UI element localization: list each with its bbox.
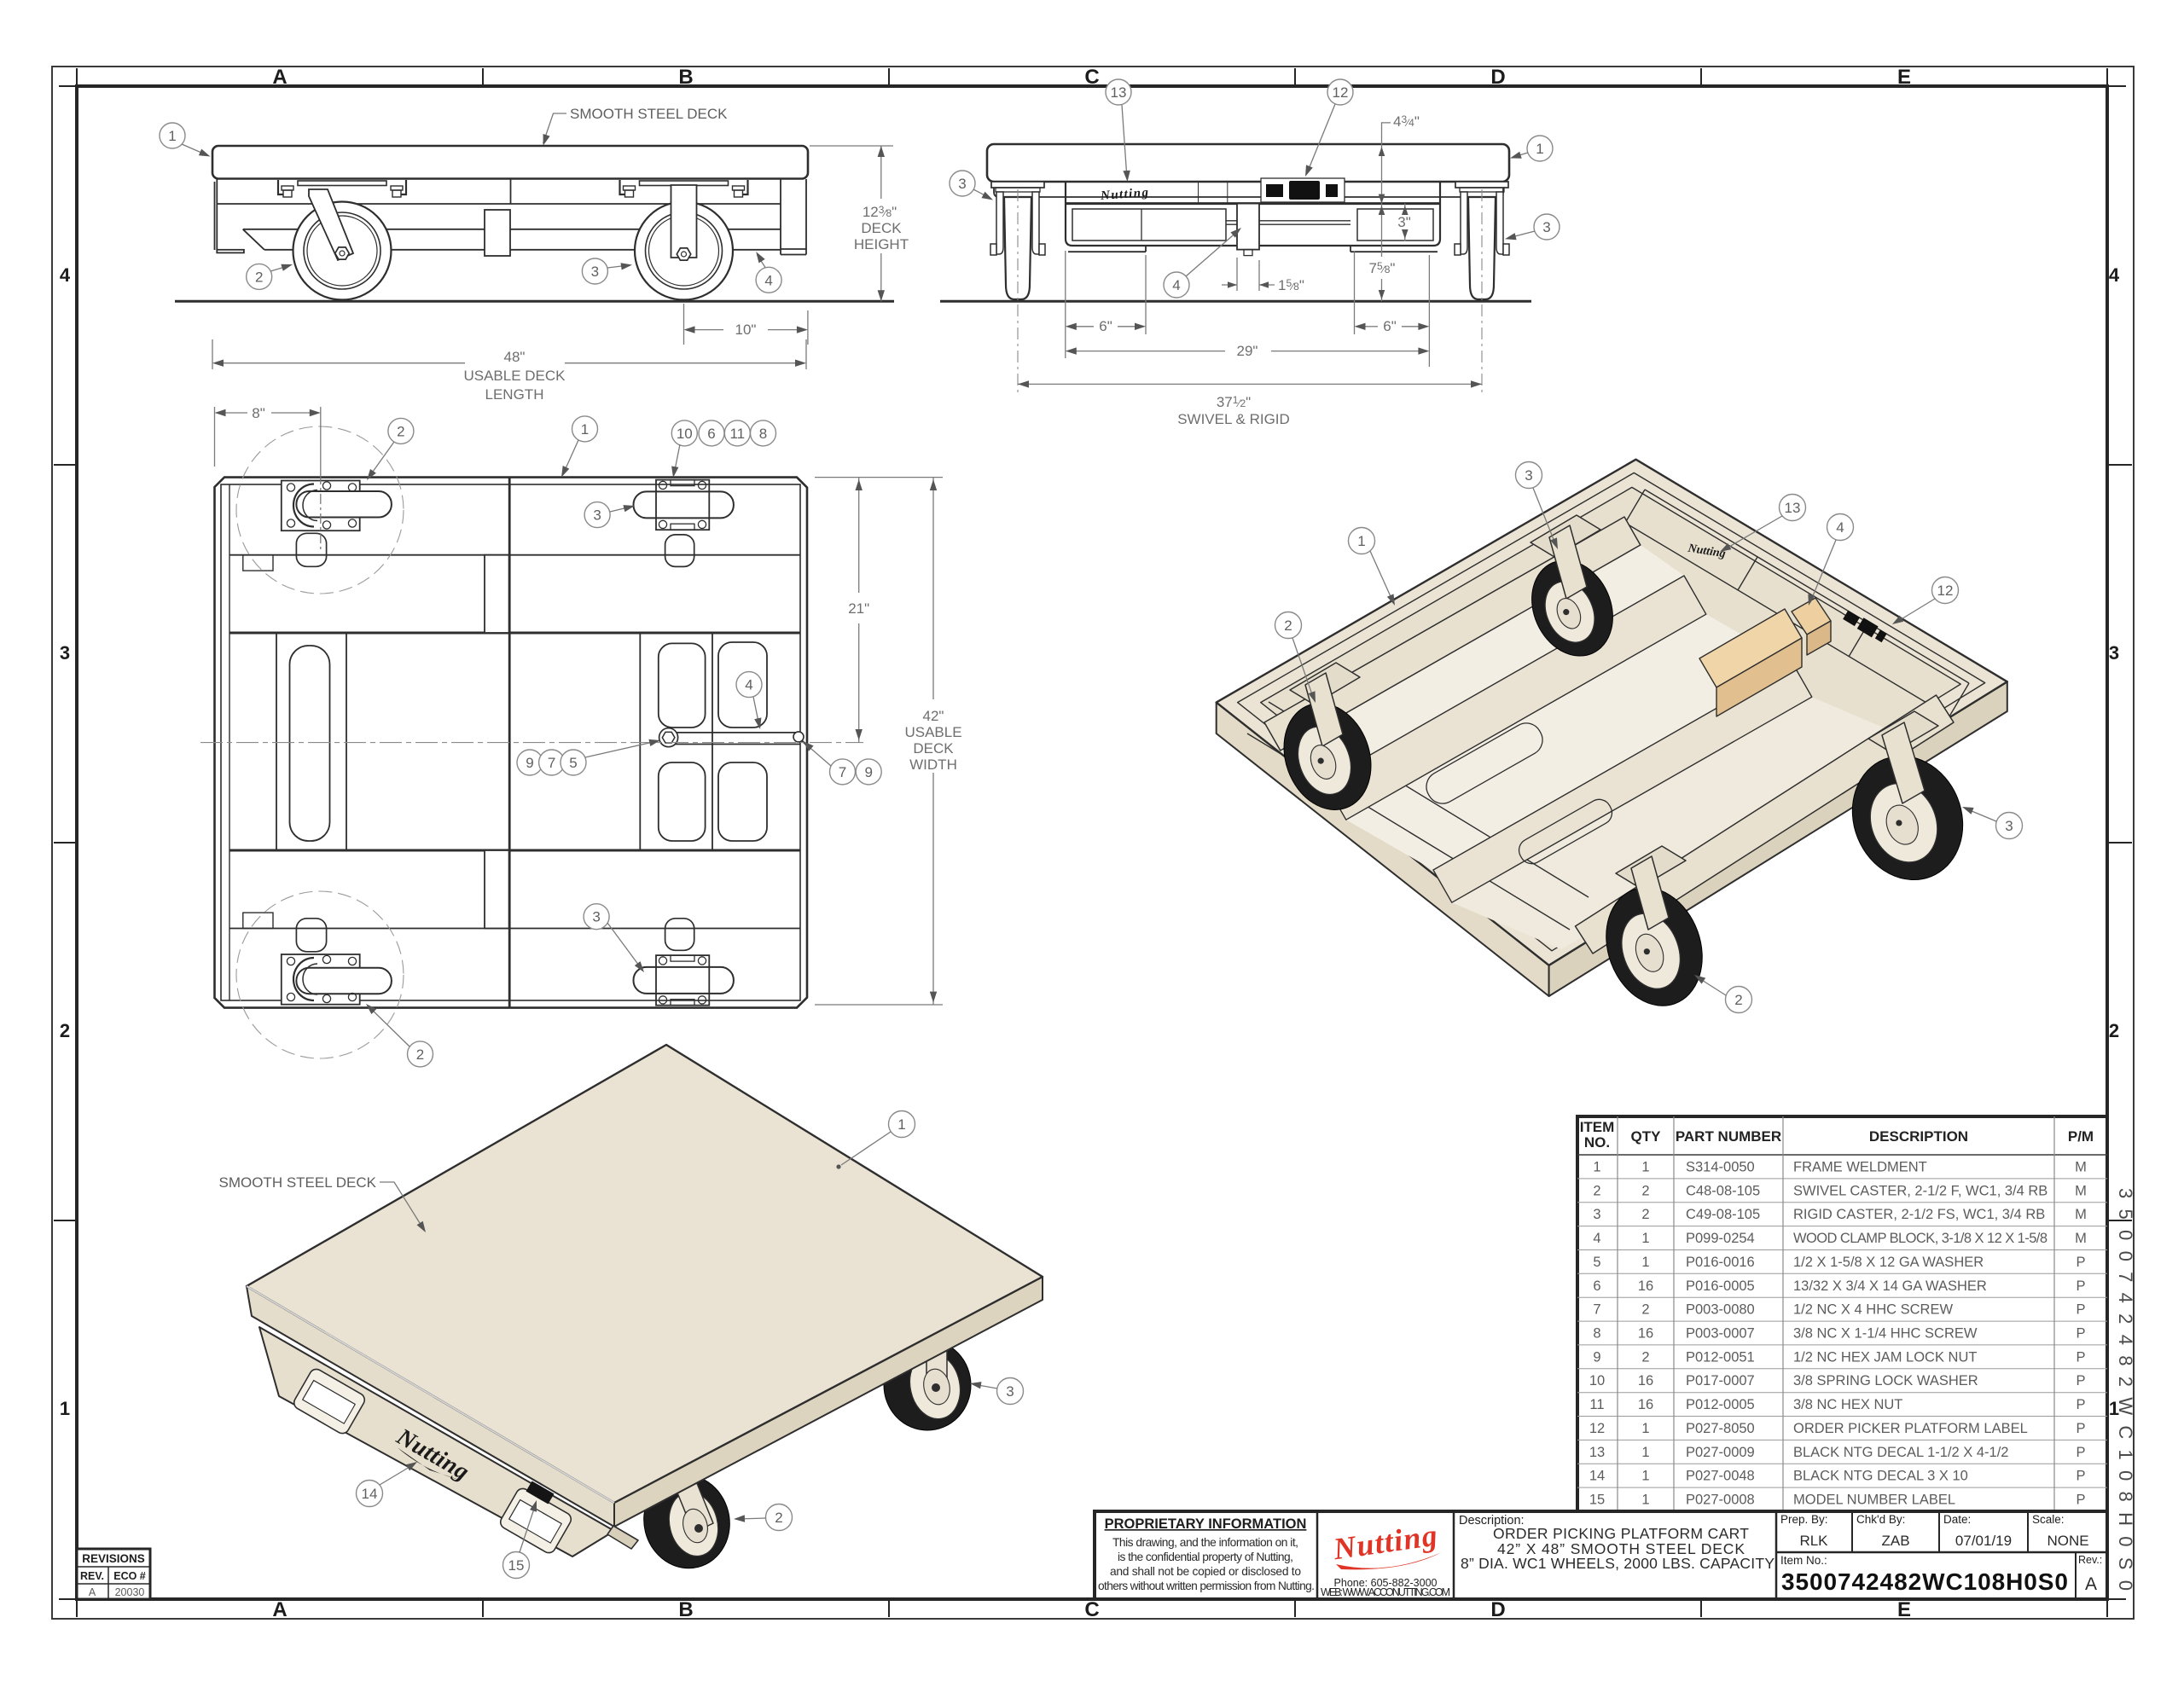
svg-text:ORDER PICKING PLATFORM CART: ORDER PICKING PLATFORM CART: [1493, 1525, 1749, 1542]
svg-text:4: 4: [2109, 264, 2120, 286]
svg-text:P: P: [2076, 1326, 2085, 1342]
svg-text:2: 2: [255, 269, 263, 285]
svg-text:3: 3: [1525, 467, 1532, 484]
svg-text:42": 42": [923, 708, 944, 724]
svg-text:SMOOTH STEEL DECK: SMOOTH STEEL DECK: [570, 106, 728, 122]
svg-text:SWIVEL & RIGID: SWIVEL & RIGID: [1177, 411, 1290, 427]
svg-text:1: 1: [1641, 1421, 1649, 1436]
svg-text:6: 6: [707, 426, 715, 442]
svg-text:2: 2: [2109, 1020, 2119, 1041]
svg-text:WEB: WWW.ACCONUTTING.COM: WEB: WWW.ACCONUTTING.COM: [1321, 1586, 1450, 1598]
svg-text:A: A: [272, 1598, 287, 1621]
svg-text:P: P: [2076, 1349, 2085, 1365]
svg-text:15⁄8": 15⁄8": [1278, 277, 1304, 293]
svg-text:2: 2: [1641, 1349, 1649, 1365]
svg-text:M: M: [2075, 1231, 2087, 1246]
svg-text:P012-0051: P012-0051: [1686, 1349, 1755, 1365]
svg-text:P: P: [2076, 1397, 2085, 1412]
svg-text:14: 14: [1589, 1469, 1605, 1484]
svg-text:16: 16: [1638, 1373, 1653, 1388]
svg-text:ECO #: ECO #: [113, 1570, 146, 1582]
svg-text:4: 4: [60, 264, 71, 286]
svg-text:16: 16: [1638, 1397, 1653, 1412]
svg-text:2: 2: [775, 1510, 782, 1526]
svg-text:3500742482WC108H0S0: 3500742482WC108H0S0: [1781, 1568, 2068, 1595]
svg-text:1: 1: [1641, 1469, 1649, 1484]
svg-text:75⁄8": 75⁄8": [1369, 260, 1396, 276]
svg-text:QTY: QTY: [1631, 1128, 1662, 1145]
svg-text:6": 6": [1383, 318, 1397, 334]
svg-text:P003-0080: P003-0080: [1686, 1302, 1755, 1318]
svg-text:P: P: [2076, 1255, 2085, 1270]
svg-text:7: 7: [839, 764, 846, 780]
svg-text:C48-08-105: C48-08-105: [1686, 1183, 1760, 1198]
svg-text:13: 13: [1111, 84, 1127, 101]
svg-text:1: 1: [1593, 1159, 1600, 1174]
svg-text:6": 6": [1099, 318, 1112, 334]
svg-text:9: 9: [526, 755, 533, 771]
svg-text:SMOOTH STEEL DECK: SMOOTH STEEL DECK: [218, 1174, 376, 1191]
svg-text:others without written permiss: others without written permission from N…: [1098, 1580, 1315, 1592]
svg-text:NONE: NONE: [2047, 1533, 2088, 1549]
svg-text:1: 1: [1641, 1445, 1649, 1460]
svg-text:REVISIONS: REVISIONS: [82, 1552, 145, 1565]
svg-text:P003-0007: P003-0007: [1686, 1326, 1755, 1342]
svg-text:P: P: [2076, 1469, 2085, 1484]
svg-text:21": 21": [848, 600, 869, 617]
svg-text:1: 1: [897, 1116, 905, 1133]
svg-text:PROPRIETARY INFORMATION: PROPRIETARY INFORMATION: [1105, 1516, 1307, 1532]
svg-text:B: B: [678, 66, 693, 89]
svg-text:P: P: [2076, 1373, 2085, 1388]
svg-text:7: 7: [548, 755, 555, 771]
svg-text:4: 4: [1836, 519, 1844, 536]
svg-text:12: 12: [1333, 84, 1349, 101]
svg-text:A: A: [89, 1586, 96, 1598]
svg-text:3": 3": [1397, 214, 1411, 230]
svg-text:4: 4: [1172, 277, 1180, 293]
svg-text:15: 15: [508, 1557, 525, 1574]
svg-text:1/2 X 1-5/8 X 12 GA WASHER: 1/2 X 1-5/8 X 12 GA WASHER: [1793, 1255, 1984, 1270]
svg-text:13: 13: [1785, 500, 1801, 516]
svg-text:RLK: RLK: [1799, 1533, 1828, 1549]
svg-text:E: E: [1897, 66, 1911, 89]
svg-text:10: 10: [1589, 1373, 1605, 1388]
svg-text:7: 7: [1593, 1302, 1600, 1318]
svg-text:C: C: [1084, 66, 1099, 89]
svg-text:M: M: [2075, 1207, 2087, 1222]
svg-text:3/8 NC X 1-1/4 HHC SCREW: 3/8 NC X 1-1/4 HHC SCREW: [1793, 1326, 1978, 1342]
svg-text:SWIVEL CASTER, 2-1/2 F, WC1, 3: SWIVEL CASTER, 2-1/2 F, WC1, 3/4 RB: [1793, 1183, 2047, 1198]
svg-text:is the confidential property o: is the confidential property of Nutting,: [1118, 1551, 1293, 1563]
svg-text:15: 15: [1589, 1493, 1605, 1508]
svg-text:3/8 NC HEX NUT: 3/8 NC HEX NUT: [1793, 1397, 1902, 1412]
svg-text:1: 1: [1641, 1255, 1649, 1270]
svg-text:10": 10": [735, 322, 757, 338]
svg-text:11: 11: [729, 426, 745, 442]
svg-text:P016-0016: P016-0016: [1686, 1255, 1755, 1270]
svg-text:2: 2: [60, 1020, 70, 1041]
svg-text:12: 12: [1589, 1421, 1605, 1436]
svg-text:1: 1: [1641, 1231, 1649, 1246]
svg-text:1: 1: [1641, 1493, 1649, 1508]
svg-text:2: 2: [1284, 617, 1292, 634]
svg-text:8: 8: [759, 426, 767, 442]
svg-text:WIDTH: WIDTH: [909, 757, 957, 773]
svg-text:Scale:: Scale:: [2032, 1513, 2065, 1526]
svg-text:P: P: [2076, 1302, 2085, 1318]
svg-text:3: 3: [1542, 219, 1550, 235]
svg-text:Rev.:: Rev.:: [2078, 1554, 2102, 1566]
svg-text:E: E: [1897, 1598, 1911, 1621]
svg-text:16: 16: [1638, 1278, 1653, 1294]
svg-text:2: 2: [1734, 992, 1742, 1008]
svg-text:P/M: P/M: [2068, 1128, 2094, 1145]
svg-text:5: 5: [1593, 1255, 1600, 1270]
svg-text:and shall not be copied or dis: and shall not be copied or disclosed to: [1110, 1565, 1301, 1578]
svg-text:A: A: [2085, 1574, 2097, 1594]
svg-text:Date:: Date:: [1943, 1513, 1971, 1526]
svg-text:8: 8: [1593, 1326, 1600, 1342]
svg-text:07/01/19: 07/01/19: [1955, 1533, 2012, 1549]
svg-text:A: A: [272, 66, 287, 89]
svg-text:2: 2: [1641, 1207, 1649, 1222]
svg-text:DECK: DECK: [861, 220, 902, 236]
svg-text:29": 29": [1237, 343, 1258, 359]
svg-text:9: 9: [1593, 1349, 1600, 1365]
svg-text:2: 2: [1641, 1183, 1649, 1198]
svg-text:P027-0048: P027-0048: [1686, 1469, 1755, 1484]
svg-text:D: D: [1490, 66, 1505, 89]
svg-text:FRAME WELDMENT: FRAME WELDMENT: [1793, 1159, 1927, 1174]
svg-text:BLACK NTG DECAL 3 X 10: BLACK NTG DECAL 3 X 10: [1793, 1469, 1968, 1484]
svg-text:P: P: [2076, 1278, 2085, 1294]
svg-text:DESCRIPTION: DESCRIPTION: [1869, 1128, 1968, 1145]
svg-text:B: B: [678, 1598, 693, 1621]
svg-text:Item No.:: Item No.:: [1780, 1554, 1827, 1567]
svg-text:2: 2: [397, 423, 404, 439]
svg-text:WOOD CLAMP BLOCK, 3-1/8 X 12 X: WOOD CLAMP BLOCK, 3-1/8 X 12 X 1-5/8: [1793, 1231, 2047, 1246]
svg-text:3: 3: [1593, 1207, 1600, 1222]
svg-text:11: 11: [1589, 1397, 1604, 1412]
svg-text:P017-0007: P017-0007: [1686, 1373, 1755, 1388]
svg-text:2: 2: [1641, 1302, 1649, 1318]
svg-text:3: 3: [2005, 818, 2013, 834]
svg-text:9: 9: [864, 764, 872, 780]
svg-text:13/32 X 3/4 X 14 GA WASHER: 13/32 X 3/4 X 14 GA WASHER: [1793, 1278, 1987, 1294]
svg-text:3/8 SPRING LOCK WASHER: 3/8 SPRING LOCK WASHER: [1793, 1373, 1978, 1388]
svg-text:S314-0050: S314-0050: [1686, 1159, 1755, 1174]
svg-text:M: M: [2075, 1159, 2087, 1174]
svg-text:8” DIA. WC1 WHEELS, 2000: 8” DIA. WC1 WHEELS, 2000 LBS. CAPACITY: [1461, 1555, 1774, 1572]
svg-text:1: 1: [168, 128, 176, 144]
svg-text:DECK: DECK: [913, 740, 954, 757]
svg-text:REV.: REV.: [80, 1570, 104, 1582]
svg-text:4: 4: [745, 677, 752, 693]
svg-text:1: 1: [1641, 1159, 1649, 1174]
svg-text:ITEM: ITEM: [1580, 1119, 1615, 1135]
svg-text:4: 4: [1593, 1231, 1600, 1246]
svg-text:MODEL NUMBER LABEL: MODEL NUMBER LABEL: [1793, 1493, 1955, 1508]
svg-text:Prep. By:: Prep. By:: [1780, 1513, 1828, 1526]
svg-text:P027-0008: P027-0008: [1686, 1493, 1755, 1508]
svg-text:1: 1: [1357, 533, 1365, 549]
svg-text:HEIGHT: HEIGHT: [854, 236, 909, 252]
svg-text:1/2 NC HEX JAM LOCK NUT: 1/2 NC HEX JAM LOCK NUT: [1793, 1349, 1977, 1365]
svg-text:NO.: NO.: [1584, 1134, 1610, 1151]
svg-text:6: 6: [1593, 1278, 1600, 1294]
svg-text:USABLE DECK: USABLE DECK: [463, 368, 566, 384]
svg-text:10: 10: [677, 426, 693, 442]
svg-text:5: 5: [569, 755, 577, 771]
svg-text:3: 3: [958, 176, 966, 192]
svg-text:P027-8050: P027-8050: [1686, 1421, 1755, 1436]
svg-text:48": 48": [504, 349, 526, 365]
svg-text:1: 1: [60, 1398, 70, 1419]
svg-text:LENGTH: LENGTH: [485, 386, 544, 403]
svg-text:P027-0009: P027-0009: [1686, 1445, 1755, 1460]
svg-text:3: 3: [1006, 1383, 1014, 1400]
svg-text:P016-0005: P016-0005: [1686, 1278, 1755, 1294]
svg-text:1: 1: [581, 421, 589, 438]
svg-text:P012-0005: P012-0005: [1686, 1397, 1755, 1412]
svg-text:D: D: [1490, 1598, 1505, 1621]
svg-text:3: 3: [591, 264, 599, 280]
svg-text:P: P: [2076, 1493, 2085, 1508]
svg-text:USABLE: USABLE: [904, 724, 961, 740]
svg-text:13: 13: [1589, 1445, 1605, 1460]
svg-text:8": 8": [252, 405, 265, 421]
svg-text:RIGID CASTER, 2-1/2 FS, WC1, 3: RIGID CASTER, 2-1/2 FS, WC1, 3/4 RB: [1793, 1207, 2045, 1222]
svg-text:M: M: [2075, 1183, 2087, 1198]
svg-text:16: 16: [1638, 1326, 1653, 1342]
svg-text:ORDER PICKER PLATFORM LABEL: ORDER PICKER PLATFORM LABEL: [1793, 1421, 2028, 1436]
svg-text:4: 4: [764, 272, 772, 288]
svg-text:2: 2: [416, 1046, 424, 1063]
svg-text:3: 3: [593, 507, 601, 524]
svg-text:43⁄4": 43⁄4": [1393, 113, 1420, 130]
svg-text:ZAB: ZAB: [1881, 1533, 1909, 1549]
svg-text:20030: 20030: [115, 1586, 145, 1598]
svg-text:This drawing, and the informat: This drawing, and the information on it,: [1112, 1536, 1298, 1549]
svg-text:BLACK NTG DECAL 1-1/2 X 4-1/2: BLACK NTG DECAL 1-1/2 X 4-1/2: [1793, 1445, 2009, 1460]
svg-text:P: P: [2076, 1421, 2085, 1436]
svg-text:3: 3: [60, 642, 70, 664]
svg-text:3: 3: [2109, 642, 2119, 664]
svg-text:2: 2: [1593, 1183, 1600, 1198]
svg-text:1/2 NC X 4 HHC SCREW: 1/2 NC X 4 HHC SCREW: [1793, 1302, 1953, 1318]
svg-text:1: 1: [1536, 141, 1543, 157]
svg-text:C49-08-105: C49-08-105: [1686, 1207, 1760, 1222]
svg-text:14: 14: [362, 1486, 378, 1502]
svg-text:Chk'd By:: Chk'd By:: [1856, 1513, 1905, 1526]
svg-text:12: 12: [1937, 583, 1954, 599]
svg-text:P099-0254: P099-0254: [1686, 1231, 1755, 1246]
svg-text:C: C: [1084, 1598, 1099, 1621]
svg-text:P: P: [2076, 1445, 2085, 1460]
svg-text:PART NUMBER: PART NUMBER: [1676, 1128, 1781, 1145]
svg-text:3: 3: [592, 909, 600, 925]
